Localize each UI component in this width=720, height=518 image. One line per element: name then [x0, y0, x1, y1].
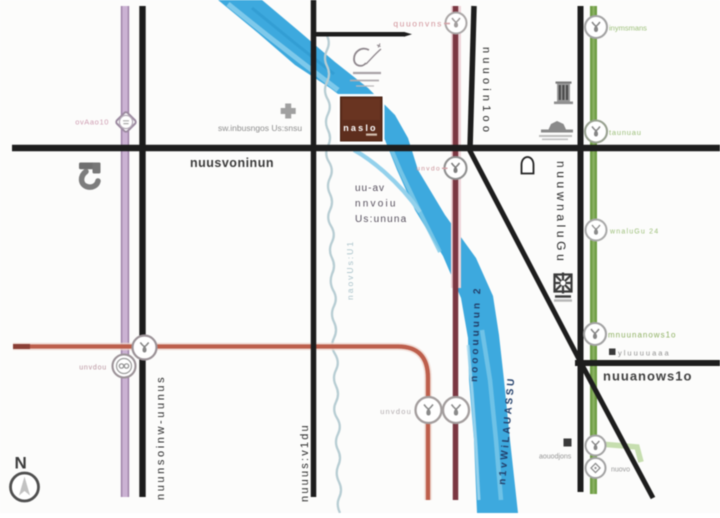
svg-text:unvdou: unvdou — [380, 407, 412, 416]
svg-text:mnuunanows1o: mnuunanows1o — [608, 331, 676, 340]
svg-text:unvdou: unvdou — [79, 365, 107, 372]
svg-text:inymsmans: inymsmans — [609, 24, 647, 33]
svg-text:nuunsoinw-uunus: nuunsoinw-uunus — [155, 375, 167, 500]
svg-text:Us:ununa: Us:ununa — [355, 214, 407, 225]
svg-text:sw.inbusngos Us:snsu: sw.inbusngos Us:snsu — [218, 123, 302, 133]
svg-text:quuonvns: quuonvns — [393, 19, 443, 29]
svg-text:nuuoin1oo: nuuoin1oo — [480, 47, 492, 136]
svg-text:uu-av: uu-av — [355, 183, 385, 194]
svg-text:nuuwnaluGu: nuuwnaluGu — [554, 161, 568, 264]
svg-text:ovAao10: ovAao10 — [75, 118, 109, 127]
svg-text:nnvoiu: nnvoiu — [355, 199, 398, 210]
svg-text:nuuanows1o: nuuanows1o — [603, 369, 692, 384]
svg-text:N: N — [15, 454, 27, 473]
svg-text:yluuuuaaa: yluuuuaaa — [618, 349, 671, 358]
svg-text:aouodjons: aouodjons — [539, 454, 572, 461]
svg-text:naslo: naslo — [343, 123, 378, 133]
svg-text:nuovo: nuovo — [611, 467, 630, 474]
svg-text:taunuau: taunuau — [609, 128, 642, 137]
svg-text:nuusvoninun: nuusvoninun — [190, 156, 274, 170]
svg-text:nuuus:v1du: nuuus:v1du — [299, 423, 311, 502]
svg-text:naovUs:U1: naovUs:U1 — [345, 240, 355, 300]
svg-text:wnaluGu 24: wnaluGu 24 — [609, 229, 659, 236]
svg-text:unvdo: unvdo — [416, 166, 441, 173]
